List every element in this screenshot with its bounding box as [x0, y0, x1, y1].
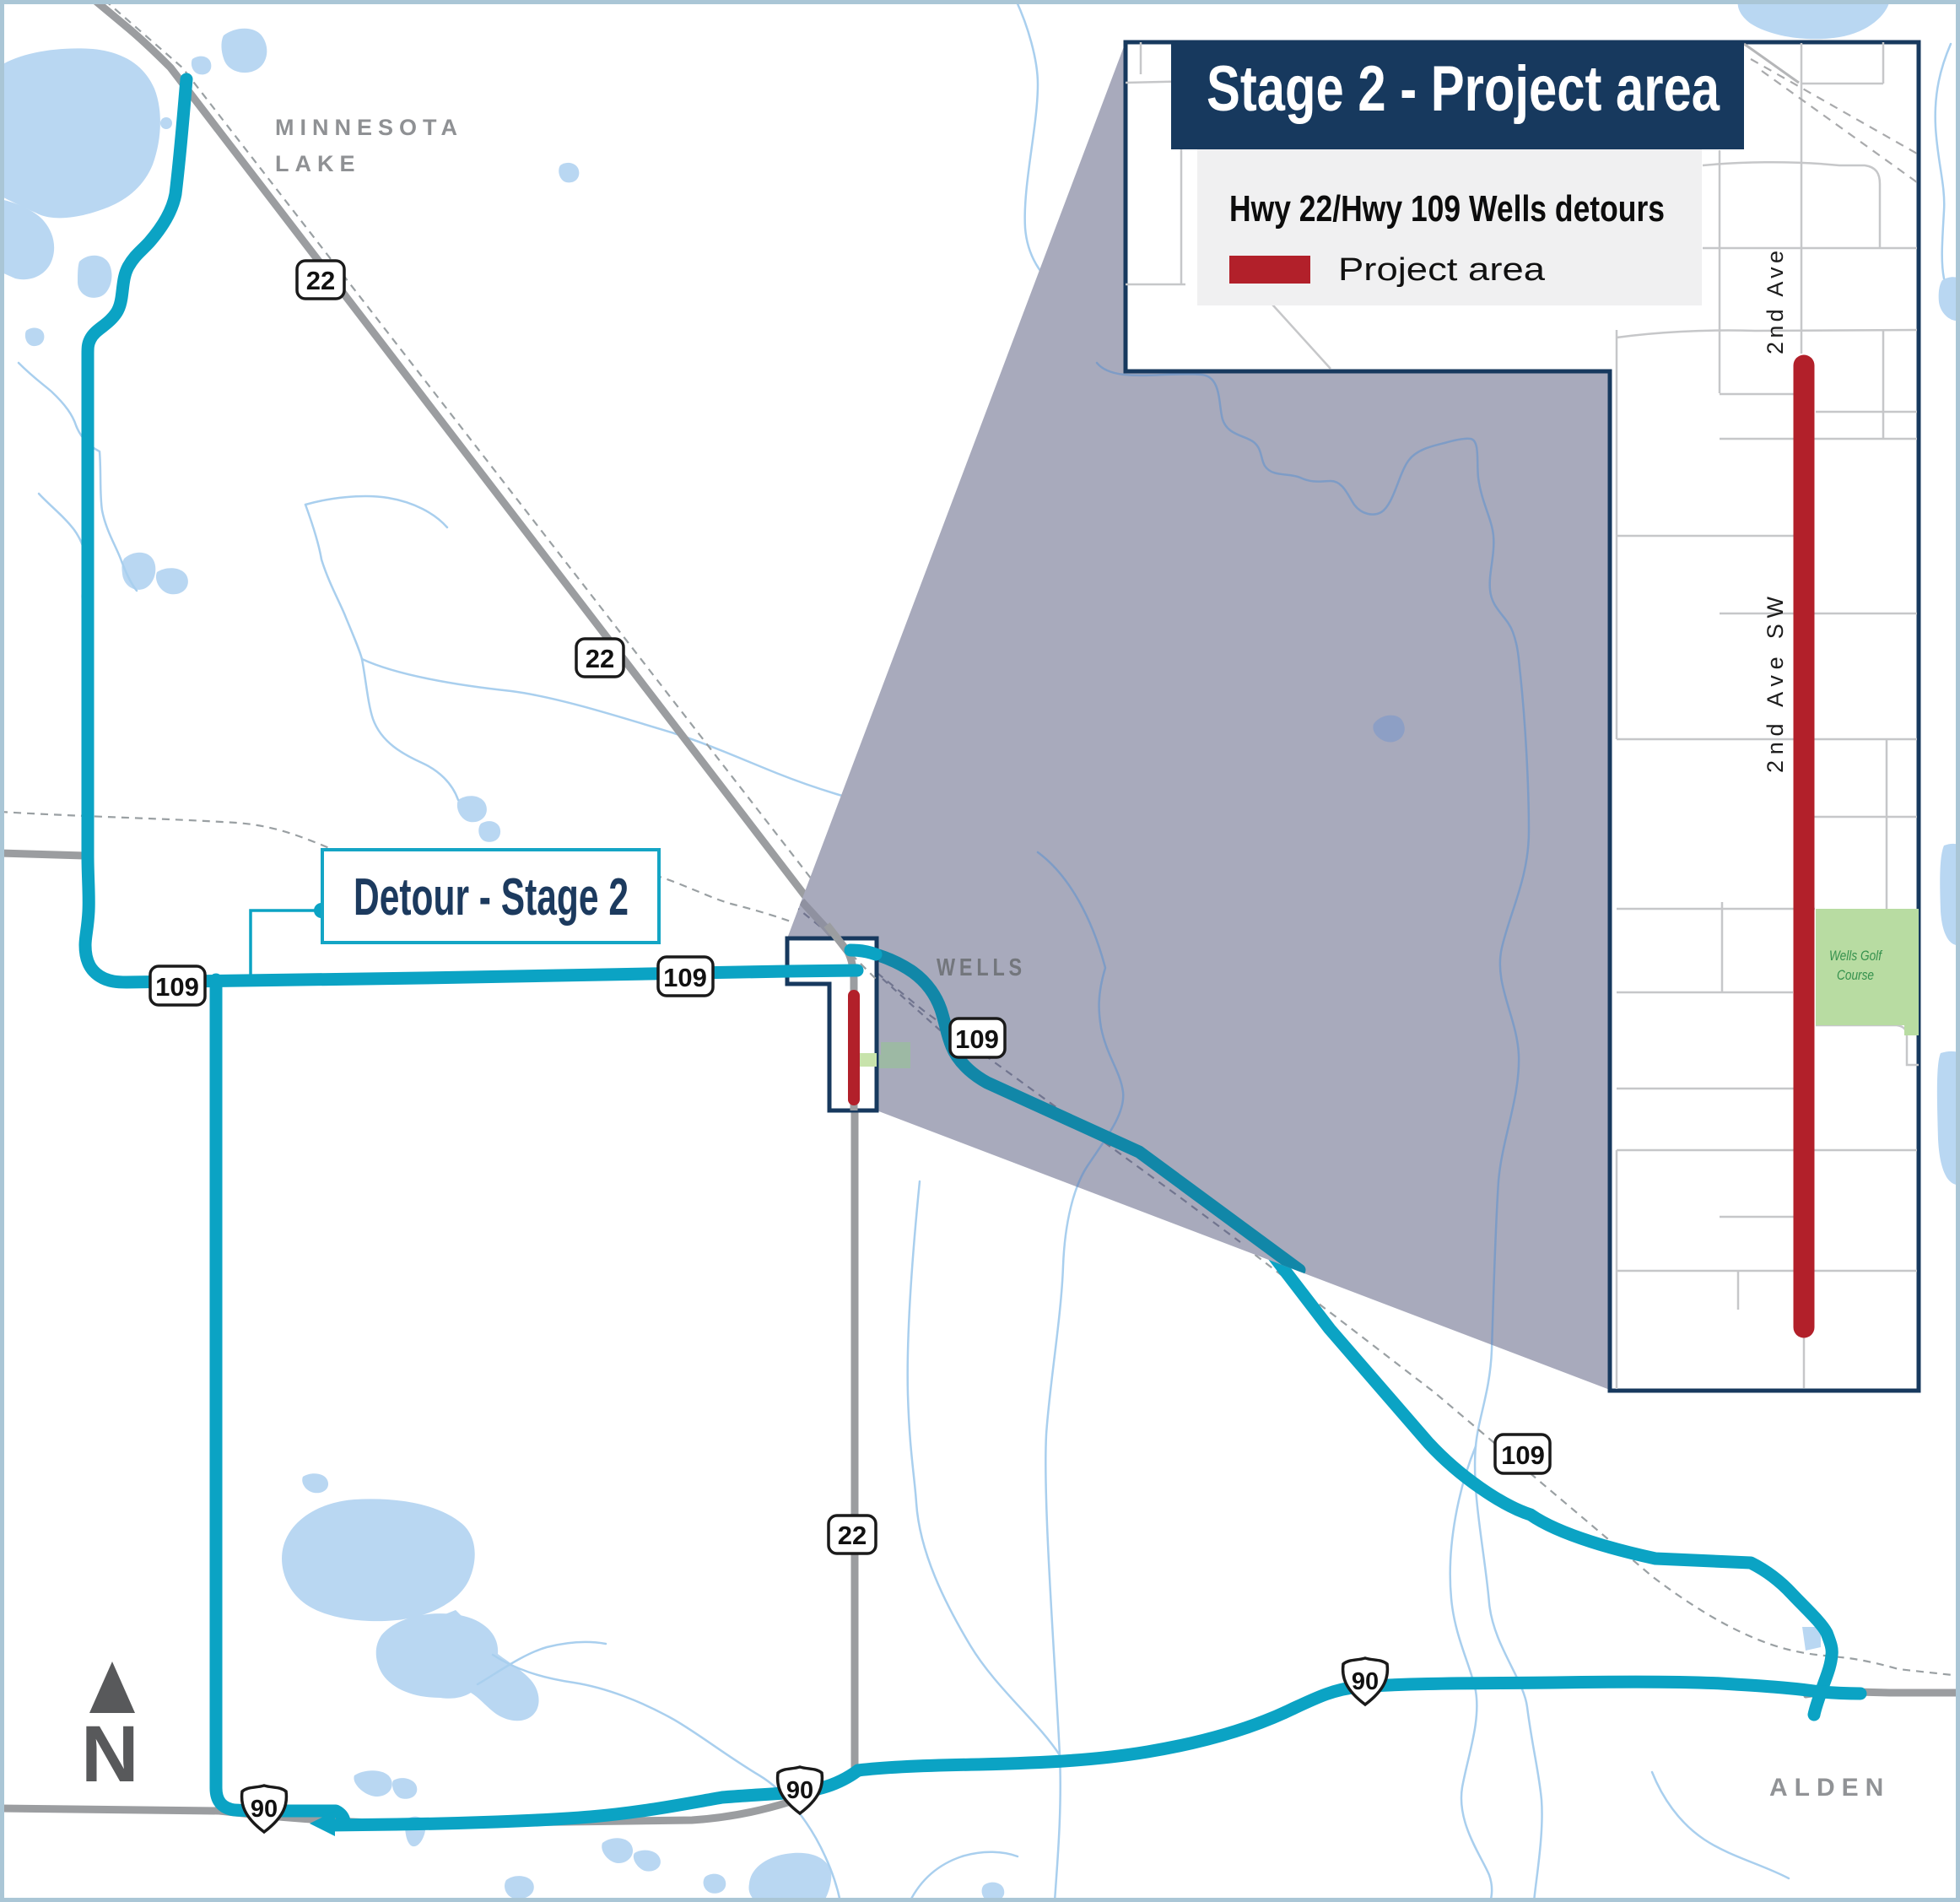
svg-text:90: 90 [786, 1777, 813, 1804]
svg-text:Stage 2 - Project area: Stage 2 - Project area [1207, 53, 1720, 125]
svg-text:ALDEN: ALDEN [1769, 1774, 1890, 1802]
svg-text:Detour - Stage 2: Detour - Stage 2 [354, 868, 629, 927]
svg-text:Course: Course [1837, 967, 1874, 983]
svg-text:22: 22 [306, 266, 335, 295]
svg-text:WELLS: WELLS [937, 954, 1026, 981]
svg-text:109: 109 [955, 1024, 999, 1054]
svg-text:90: 90 [251, 1796, 278, 1823]
svg-text:Project area: Project area [1338, 252, 1546, 288]
svg-text:Wells Golf: Wells Golf [1829, 948, 1883, 964]
svg-text:LAKE: LAKE [275, 151, 361, 176]
svg-text:MINNESOTA: MINNESOTA [275, 115, 463, 140]
svg-text:22: 22 [586, 644, 614, 673]
svg-text:109: 109 [663, 963, 707, 992]
svg-text:109: 109 [155, 972, 199, 1002]
svg-text:Hwy 22/Hwy 109 Wells detours: Hwy 22/Hwy 109 Wells detours [1229, 188, 1665, 230]
svg-text:N: N [81, 1710, 139, 1799]
svg-text:22: 22 [838, 1521, 867, 1550]
svg-text:90: 90 [1352, 1668, 1379, 1695]
svg-text:109: 109 [1501, 1440, 1545, 1470]
